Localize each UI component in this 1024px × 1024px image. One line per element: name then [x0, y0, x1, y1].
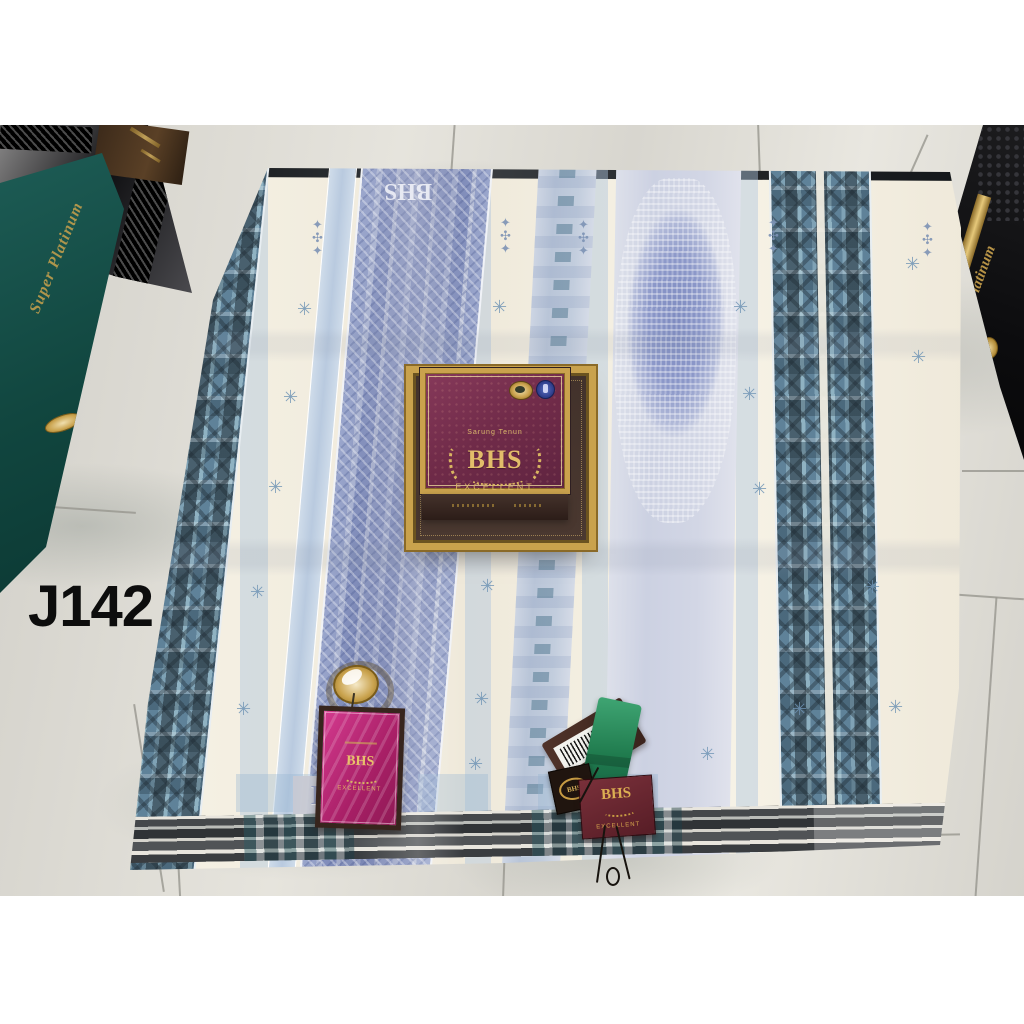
snowflake-motif: ✳ [468, 755, 483, 773]
gold-print-mark [140, 149, 160, 163]
totem-motif: ✦✣✦ [500, 216, 513, 255]
tag-gold-rule [345, 741, 377, 744]
snowflake-motif: ✳ [268, 478, 283, 496]
snowflake-motif: ✳ [733, 298, 748, 316]
snowflake-motif: ✳ [700, 745, 715, 763]
teal-ikat-column-right [769, 168, 883, 878]
teal-box-label: Super Platinum [21, 185, 94, 331]
totem-motif: ✦✣✦ [578, 218, 591, 257]
gold-print-mark [452, 504, 494, 507]
plaid-rise-band [418, 774, 488, 812]
snowflake-motif: ✳ [250, 583, 265, 601]
snowflake-motif: ✳ [236, 700, 251, 718]
grade-label: EXCELLENT [425, 482, 565, 492]
maroon-tag-brand: BHS [580, 784, 653, 806]
tile-grout-line [757, 125, 761, 175]
snowflake-motif: ✳ [911, 348, 926, 366]
product-photo: Super Platinum Platinum BHS [0, 125, 1024, 896]
tile-grout-line [975, 597, 998, 896]
gold-round-emblem [980, 337, 998, 359]
teal-sarong-box: Super Platinum [0, 153, 124, 595]
gold-print-mark [130, 127, 161, 148]
gold-print-mark [514, 504, 544, 507]
hem-light-patch [814, 803, 947, 851]
totem-motif: ✦✣✦ [922, 220, 935, 259]
gold-oval-emblem [42, 409, 83, 437]
tile-grout-line [450, 125, 455, 171]
totem-motif: ✦✣✦ [312, 218, 325, 257]
gold-seal-badge [509, 381, 533, 400]
snowflake-motif: ✳ [492, 298, 507, 316]
snowflake-motif: ✳ [742, 385, 757, 403]
totem-motif: ✦✣✦ [768, 216, 781, 255]
snowflake-motif: ✳ [297, 300, 312, 318]
laurel-wreath-bottom [602, 805, 637, 818]
snowflake-motif: ✳ [752, 480, 767, 498]
snowflake-motif: ✳ [792, 700, 807, 718]
woven-brand-top: BHS [376, 174, 440, 204]
snowflake-motif: ✳ [865, 578, 880, 596]
product-code-overlay: J142 [28, 573, 153, 640]
snowflake-motif: ✳ [905, 255, 920, 273]
product-box-front: Sarung Tenun BHS EXCELLENT [420, 368, 570, 494]
pink-hang-tag: BHS EXCELLENT [315, 706, 405, 831]
bhs-product-box: Sarung Tenun BHS EXCELLENT [420, 368, 570, 520]
tag-string-loop [606, 867, 620, 886]
pink-tag-grade: EXCELLENT [321, 785, 397, 794]
product-category-label: Sarung Tenun [425, 429, 565, 436]
tile-grout-line [962, 470, 1024, 472]
product-box-side [422, 494, 568, 520]
snowflake-motif: ✳ [480, 577, 495, 595]
photo-canvas: Super Platinum Platinum BHS [0, 0, 1024, 1024]
pink-tag-brand: BHS [322, 753, 399, 772]
snowflake-motif: ✳ [283, 388, 298, 406]
blue-seal-badge [536, 380, 555, 399]
crate-lattice-edge [0, 125, 93, 153]
snowflake-motif: ✳ [888, 698, 903, 716]
laurel-wreath-bottom [342, 771, 380, 784]
snowflake-motif: ✳ [474, 690, 489, 708]
